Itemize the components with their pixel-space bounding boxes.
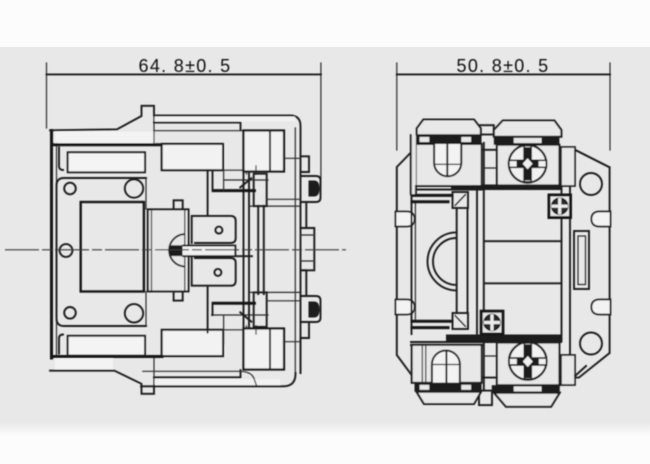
- svg-text:64. 8±0. 5: 64. 8±0. 5: [139, 56, 232, 76]
- svg-text:50. 8±0. 5: 50. 8±0. 5: [457, 56, 550, 76]
